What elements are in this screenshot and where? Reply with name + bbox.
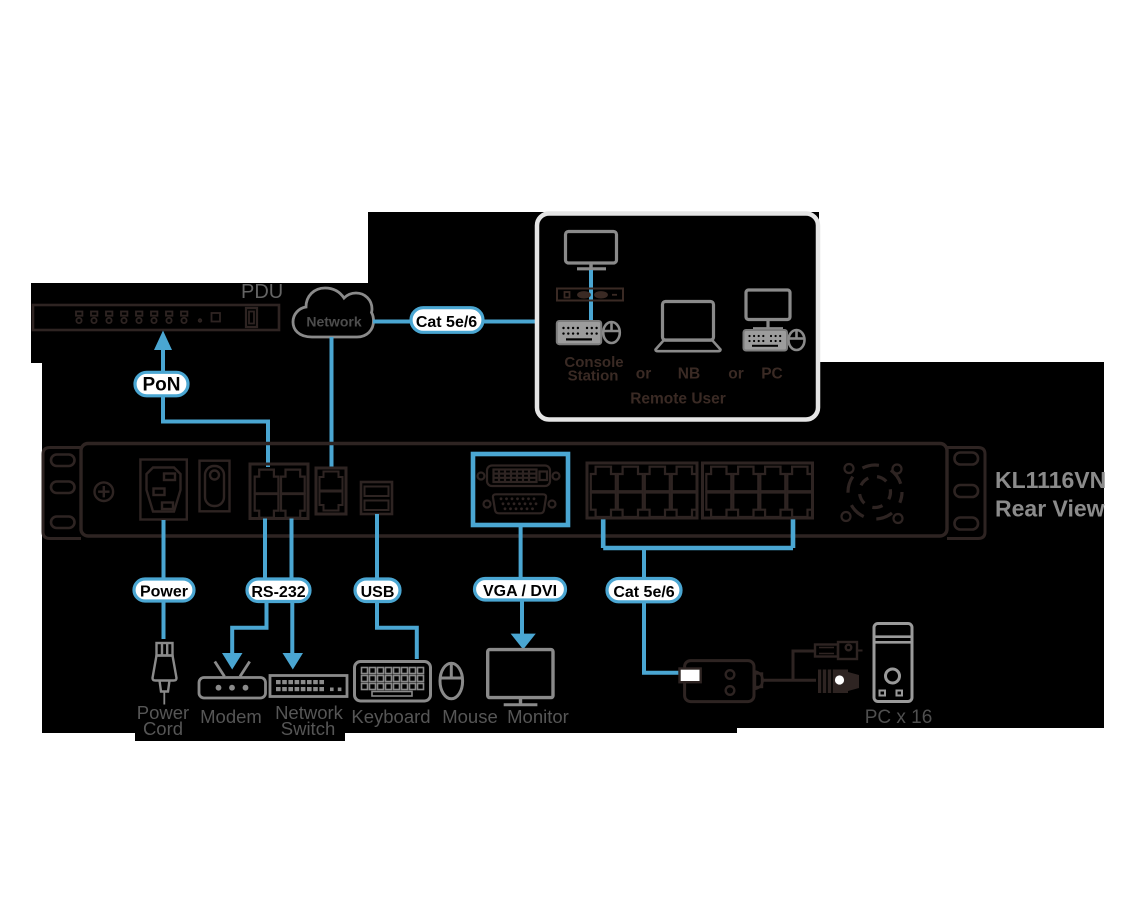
svg-text:Modem: Modem xyxy=(200,706,262,727)
svg-text:PoN: PoN xyxy=(143,375,181,396)
svg-text:or: or xyxy=(728,366,744,383)
svg-text:Cat 5e/6: Cat 5e/6 xyxy=(416,314,477,331)
svg-text:PDU: PDU xyxy=(241,281,283,303)
svg-text:PC: PC xyxy=(761,366,783,383)
svg-text:Cord: Cord xyxy=(143,718,183,739)
svg-text:Rear View: Rear View xyxy=(995,496,1105,522)
svg-text:USB: USB xyxy=(361,584,395,601)
svg-text:VGA / DVI: VGA / DVI xyxy=(483,583,557,600)
svg-text:Network: Network xyxy=(306,314,361,330)
svg-text:Monitor: Monitor xyxy=(507,706,569,727)
svg-text:Switch: Switch xyxy=(281,718,336,739)
svg-text:or: or xyxy=(636,366,652,383)
svg-text:PC x 16: PC x 16 xyxy=(865,707,933,728)
svg-text:Power: Power xyxy=(140,584,188,601)
svg-text:KL1116VN: KL1116VN xyxy=(995,467,1106,493)
svg-text:Keyboard: Keyboard xyxy=(351,706,430,727)
svg-text:Station: Station xyxy=(568,368,619,385)
svg-text:Mouse: Mouse xyxy=(442,706,498,727)
svg-text:RS-232: RS-232 xyxy=(251,584,305,601)
svg-text:NB: NB xyxy=(678,366,700,383)
svg-text:Remote User: Remote User xyxy=(630,391,726,408)
svg-text:Cat 5e/6: Cat 5e/6 xyxy=(613,584,674,601)
